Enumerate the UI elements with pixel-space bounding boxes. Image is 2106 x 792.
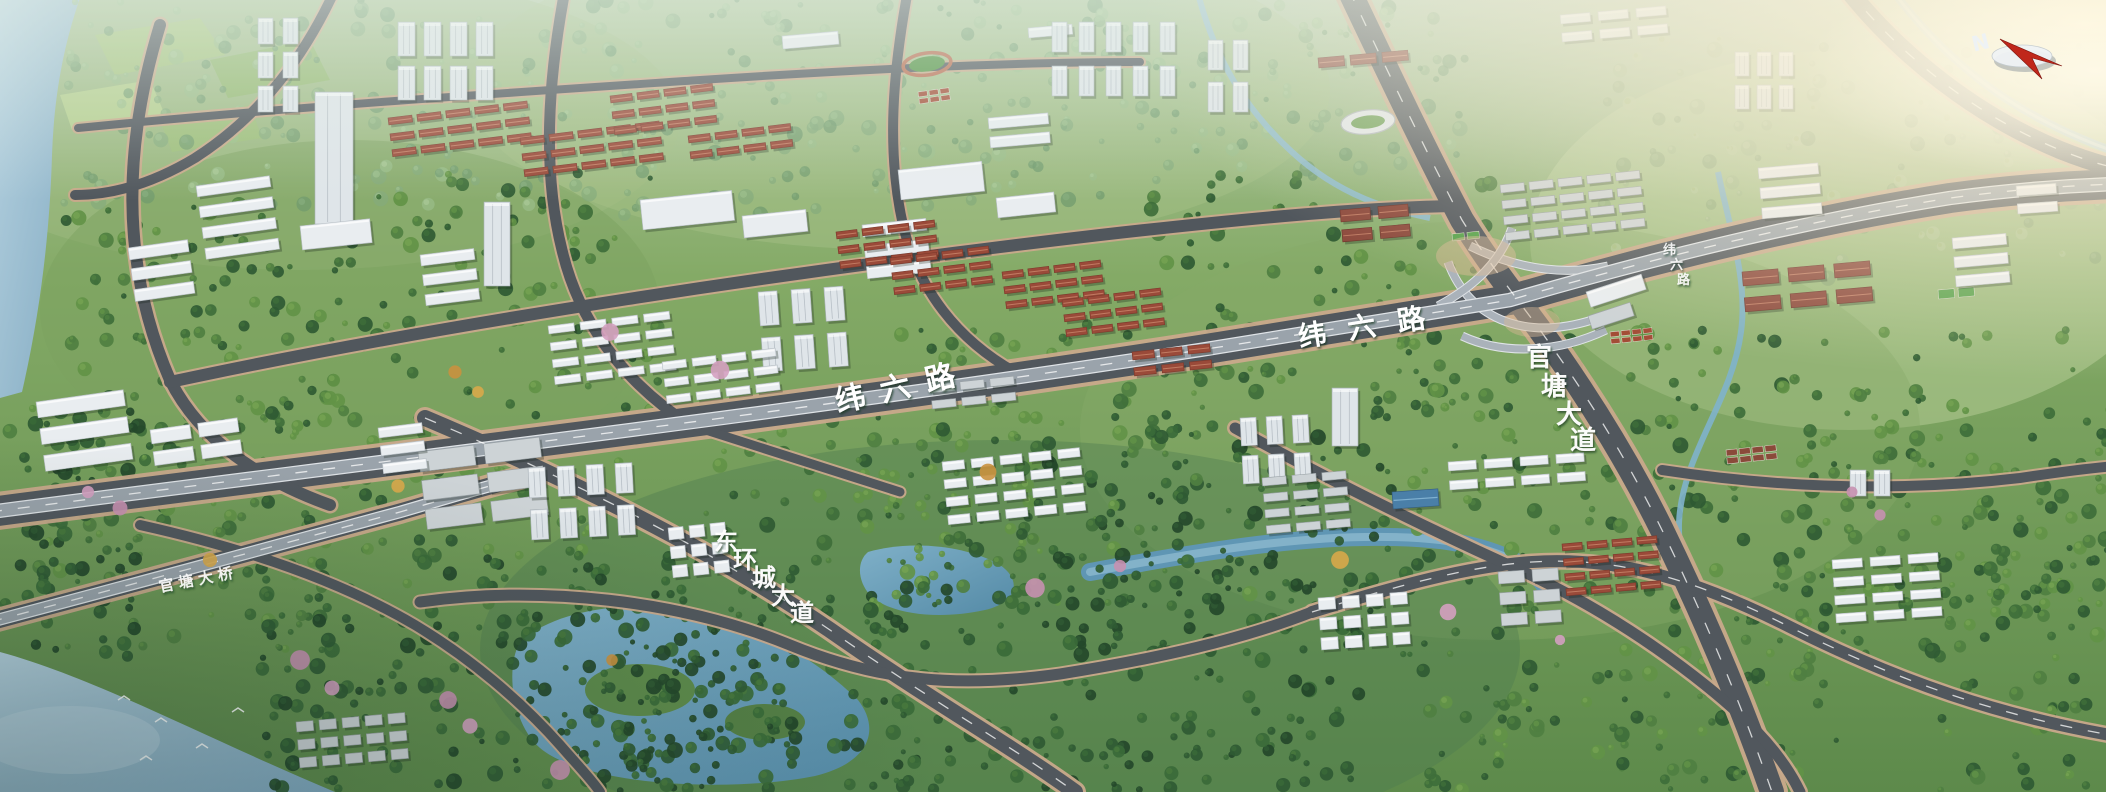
- masterplan-svg: 纬六路 纬六路 官塘大桥 官塘大道 东环城大道 纬六路 N: [0, 0, 2106, 792]
- aerial-masterplan-rendering: 纬六路 纬六路 官塘大桥 官塘大道 东环城大道 纬六路 N: [0, 0, 2106, 792]
